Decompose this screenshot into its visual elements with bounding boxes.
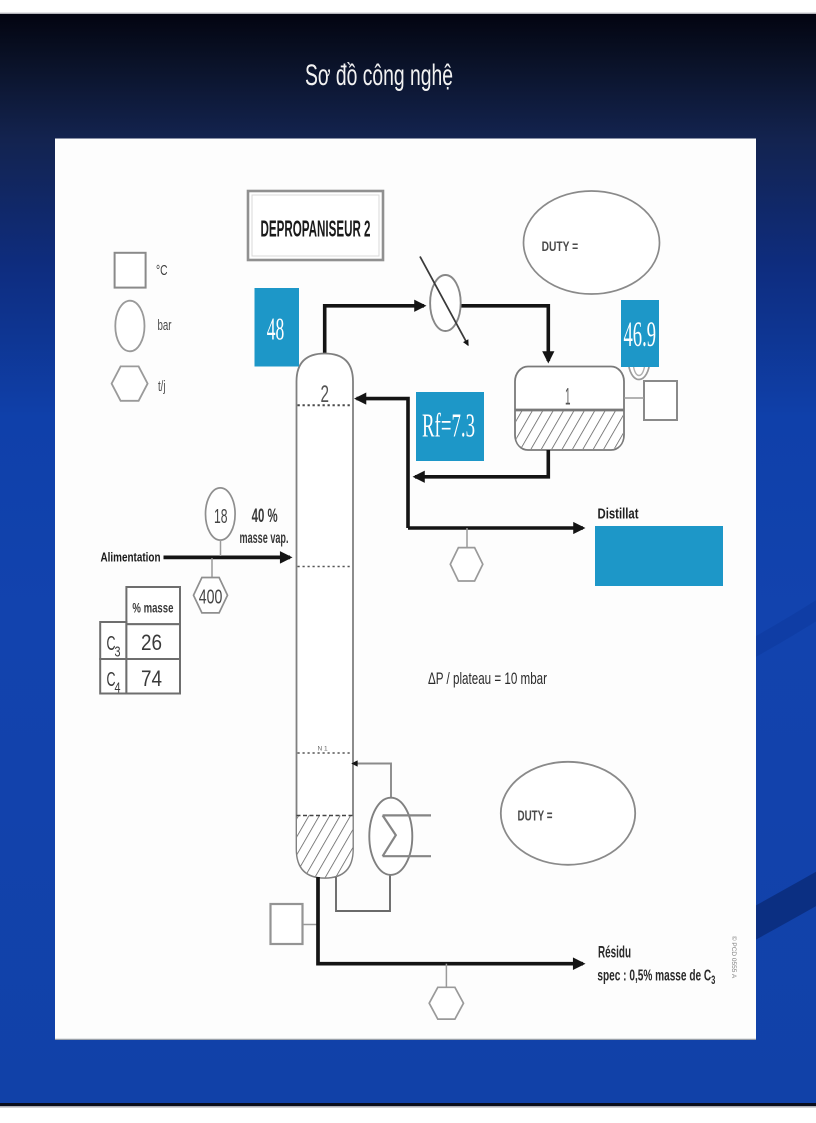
svg-text:26: 26	[141, 630, 162, 655]
svg-text:DUTY =: DUTY =	[518, 808, 553, 825]
svg-text:74: 74	[141, 666, 162, 691]
svg-text:400: 400	[199, 587, 223, 609]
svg-text:46.9: 46.9	[624, 314, 657, 354]
svg-text:4: 4	[115, 680, 121, 697]
svg-text:Rf=7.3: Rf=7.3	[422, 408, 475, 445]
svg-text:1: 1	[565, 384, 571, 411]
svg-text:DEPROPANISEUR 2: DEPROPANISEUR 2	[261, 216, 371, 242]
svg-text:Alimentation: Alimentation	[101, 550, 161, 565]
svg-text:spec : 0,5% masse de C3: spec : 0,5% masse de C3	[597, 968, 715, 988]
svg-text:DUTY =: DUTY =	[542, 238, 579, 254]
svg-text:% masse: % masse	[132, 600, 173, 616]
svg-text:40 %: 40 %	[252, 506, 278, 527]
svg-text:2: 2	[321, 381, 330, 408]
svg-text:N 1: N 1	[318, 746, 329, 753]
svg-text:Sơ đồ công nghệ: Sơ đồ công nghệ	[305, 59, 453, 92]
svg-text:bar: bar	[158, 317, 172, 334]
svg-text:ΔP / plateau = 10 mbar: ΔP / plateau = 10 mbar	[428, 670, 547, 688]
svg-text:t/j: t/j	[158, 378, 166, 395]
svg-text:3: 3	[115, 644, 121, 661]
svg-text:masse vap.: masse vap.	[240, 530, 289, 547]
svg-text:© PCD 0555 A: © PCD 0555 A	[730, 936, 738, 979]
svg-text:Distillat: Distillat	[598, 506, 639, 523]
svg-text:18: 18	[214, 506, 228, 528]
svg-text:°C: °C	[156, 262, 168, 279]
svg-text:Résidu: Résidu	[598, 943, 631, 962]
svg-text:48: 48	[267, 311, 285, 347]
